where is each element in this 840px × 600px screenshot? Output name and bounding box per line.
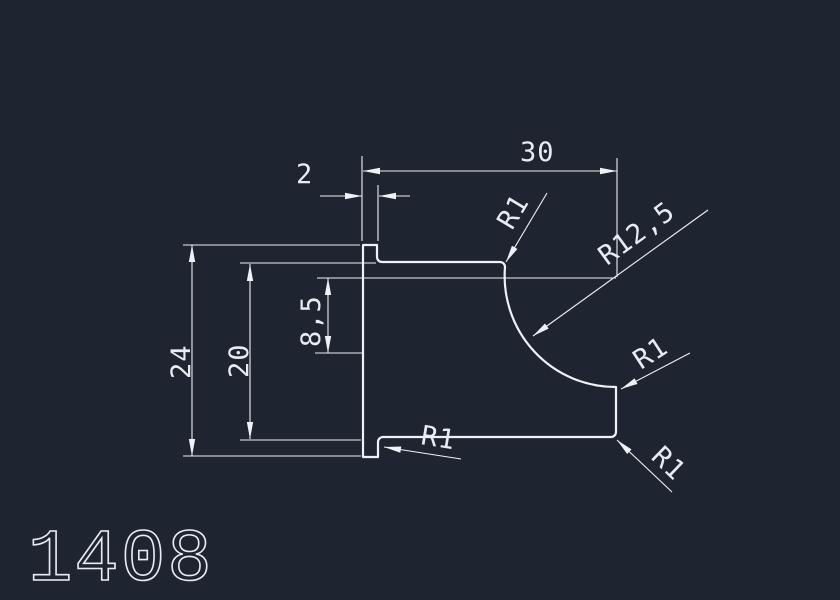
dim-arrow	[247, 422, 253, 439]
leader-arrow	[531, 323, 549, 338]
radius-label-bottom-right: R1	[645, 441, 691, 487]
radius-label-top: R1	[491, 189, 535, 235]
dim-arrow	[363, 168, 380, 174]
part-number-text: 1408	[28, 519, 214, 600]
dim-label-tab-thickness: 2	[296, 159, 313, 190]
dim-label-overall-height: 24	[166, 344, 197, 379]
cad-viewport[interactable]: 30 2 24 20 8,5 R1 R12,5 R1 R1 R1 1408	[0, 0, 840, 600]
leader-arrow	[620, 378, 638, 392]
dim-arrow	[345, 193, 362, 199]
dim-arrow	[189, 245, 195, 262]
part-profile-outline	[363, 245, 616, 457]
dimension-arrows	[189, 168, 638, 456]
radius-label-mid-right: R1	[628, 331, 674, 376]
dimension-lines	[192, 171, 617, 456]
cad-drawing-canvas[interactable]: 30 2 24 20 8,5 R1 R12,5 R1 R1 R1 1408	[0, 0, 840, 600]
dim-arrow	[379, 193, 396, 199]
dim-arrow	[247, 264, 253, 281]
radius-label-concave-arc: R12,5	[593, 196, 681, 272]
radius-label-bottom-left: R1	[419, 420, 458, 456]
dim-label-overall-width: 30	[520, 137, 555, 168]
dim-label-inner-height: 20	[224, 343, 255, 378]
leader-arrow	[503, 246, 517, 264]
dim-arrow	[600, 168, 617, 174]
extension-lines	[183, 156, 617, 456]
dim-label-arc-offset: 8,5	[296, 295, 327, 347]
dim-arrow	[325, 278, 331, 295]
leader-arrow	[384, 444, 402, 453]
dim-arrow	[189, 439, 195, 456]
